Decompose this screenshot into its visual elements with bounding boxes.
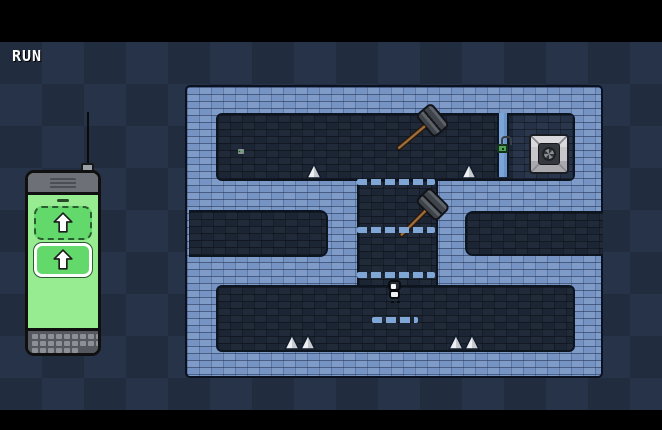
command-button-2[interactable] xyxy=(34,243,92,277)
arrow-up-icon xyxy=(52,212,74,234)
remote-key xyxy=(88,334,94,339)
remote-top-cap xyxy=(28,173,98,195)
remote-key xyxy=(56,348,62,353)
key-row xyxy=(32,341,94,346)
screen-notch xyxy=(57,199,69,202)
remote-control xyxy=(25,170,101,356)
key-row xyxy=(32,348,94,353)
arrow-up-icon xyxy=(52,249,74,271)
playfield: RUN xyxy=(0,42,662,410)
remote-key xyxy=(96,341,101,346)
remote-key xyxy=(96,334,101,339)
key-row xyxy=(32,334,94,339)
remote-key xyxy=(48,334,54,339)
remote-key xyxy=(64,341,70,346)
remote-key xyxy=(64,334,70,339)
remote-key xyxy=(48,341,54,346)
remote-key xyxy=(80,341,86,346)
remote-key xyxy=(56,334,62,339)
remote-key xyxy=(88,341,94,346)
command-button-1[interactable] xyxy=(34,206,92,240)
remote-key xyxy=(32,348,38,353)
remote-keyboard xyxy=(25,328,101,356)
letterbox-top xyxy=(0,0,662,42)
remote-key xyxy=(56,341,62,346)
remote-key xyxy=(48,348,54,353)
remote-key xyxy=(72,334,78,339)
remote-key xyxy=(72,341,78,346)
remote-key xyxy=(64,348,70,353)
remote-key xyxy=(32,341,38,346)
vertical-corridor xyxy=(357,181,438,291)
locked-chamber xyxy=(512,115,573,179)
bottom-room xyxy=(216,285,575,352)
remote-key xyxy=(40,341,46,346)
remote-speaker xyxy=(50,178,76,189)
game-level xyxy=(185,85,603,378)
remote-key xyxy=(32,334,38,339)
remote-key xyxy=(40,348,46,353)
letterbox-bottom xyxy=(0,410,662,430)
left-passage xyxy=(189,210,328,257)
remote-key xyxy=(40,334,46,339)
right-passage xyxy=(465,211,603,256)
run-button[interactable]: RUN xyxy=(12,47,42,65)
remote-screen xyxy=(28,195,98,277)
remote-key xyxy=(80,334,86,339)
remote-key xyxy=(72,348,78,353)
